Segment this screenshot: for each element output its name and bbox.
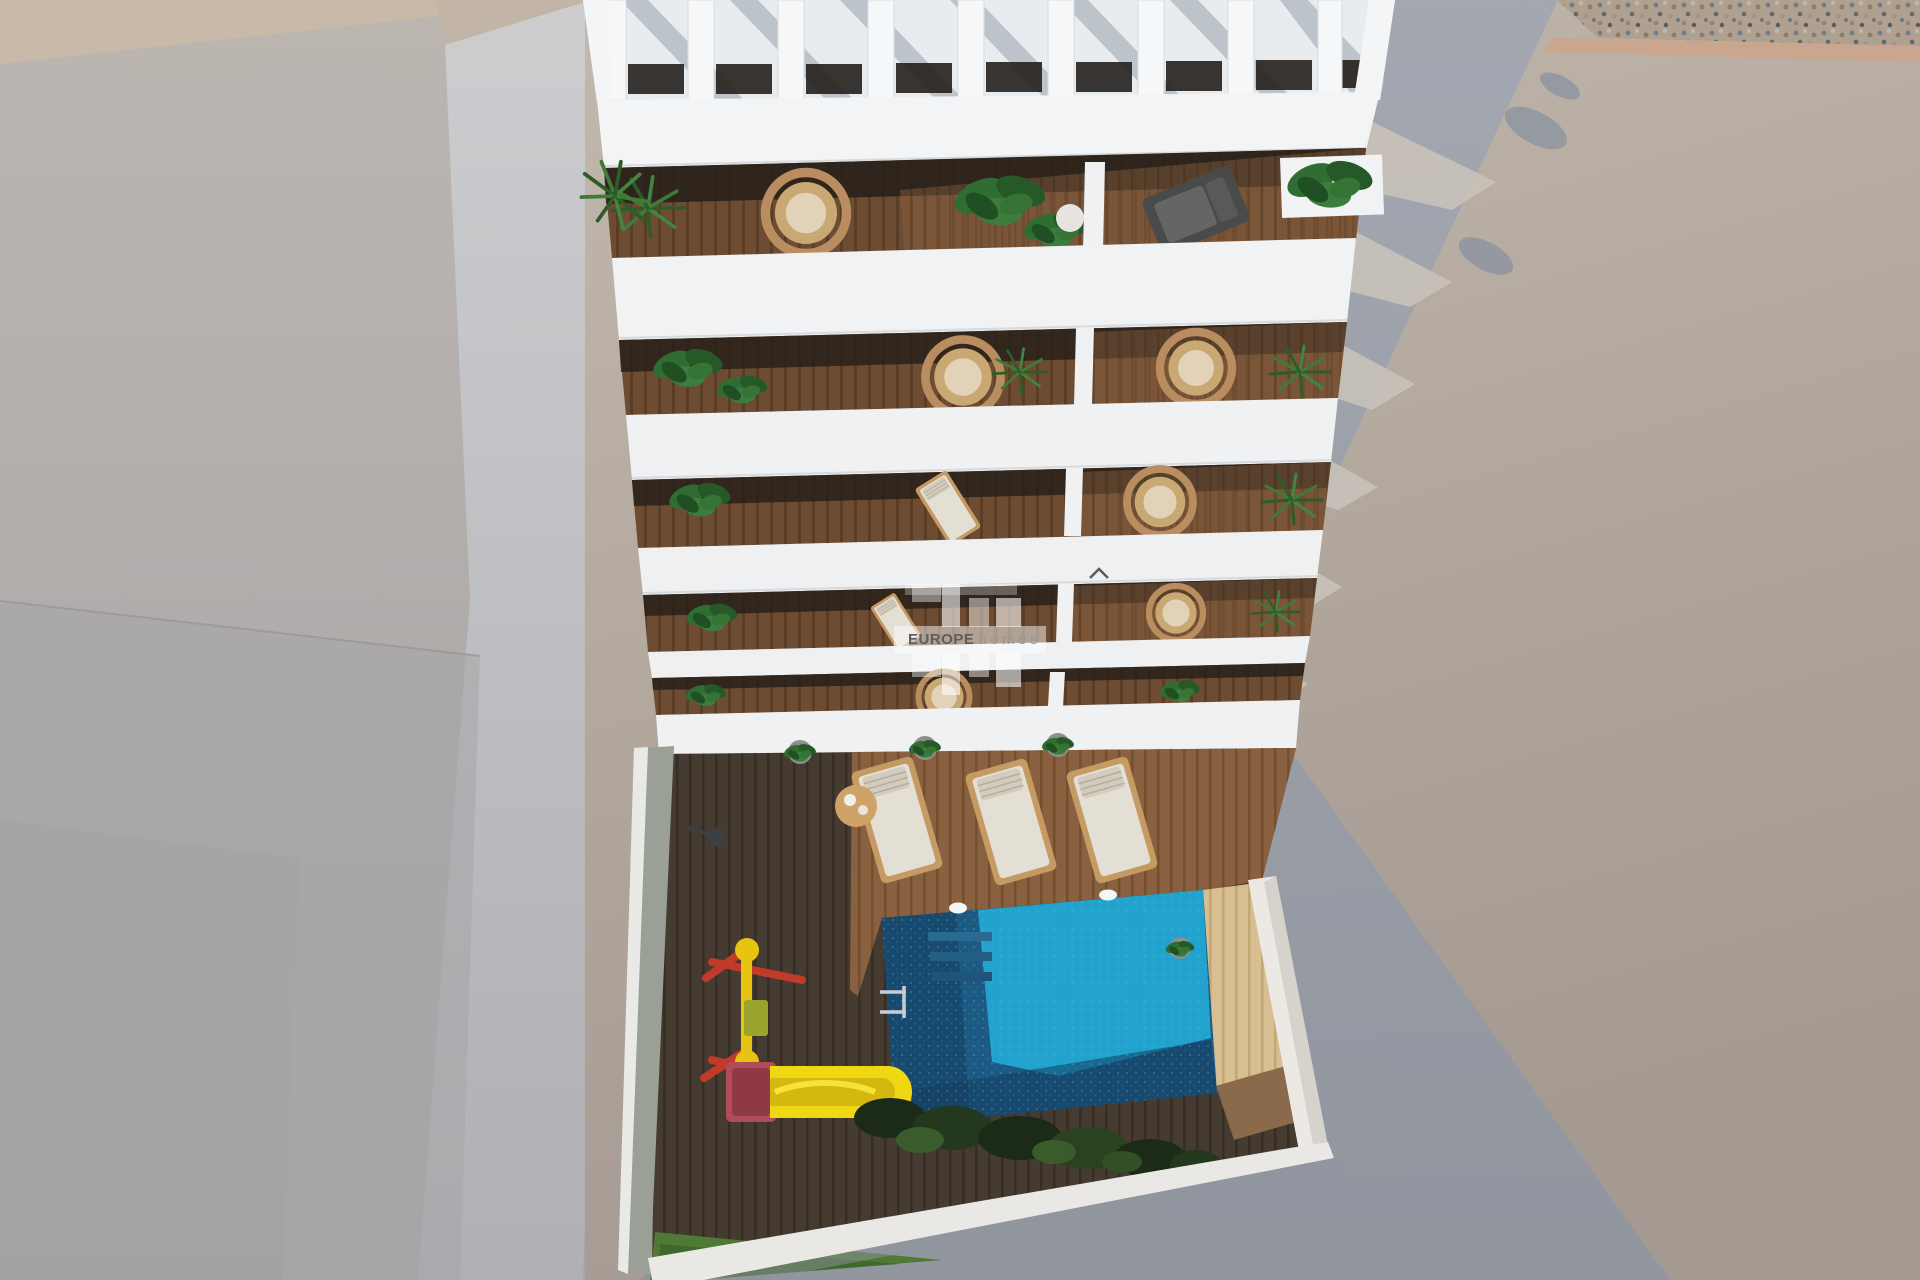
pergola-slats xyxy=(600,0,1342,100)
side-table xyxy=(835,785,877,827)
building xyxy=(567,0,1395,754)
render-canvas: EUROPE homes xyxy=(0,0,1920,1280)
scene-svg xyxy=(0,0,1920,1280)
pool-light xyxy=(1099,890,1117,901)
swimming-pool xyxy=(880,890,1217,1127)
pergola-openings xyxy=(628,60,1376,94)
pergola-roof xyxy=(583,0,1395,102)
pool-light xyxy=(949,903,967,914)
balcony-table xyxy=(1056,204,1084,232)
